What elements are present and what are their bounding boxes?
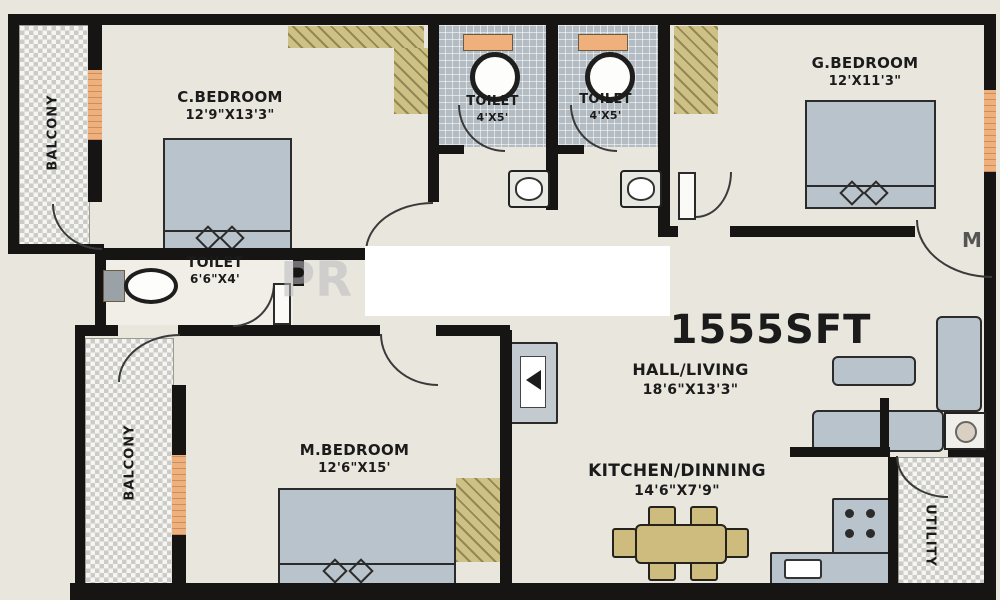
tv-unit-icon xyxy=(510,342,558,424)
watermark-box xyxy=(365,246,670,316)
room-name: HALL/LIVING xyxy=(598,360,783,381)
room-dims: 4'X5' xyxy=(558,109,653,123)
room-label-utility: UTILITY xyxy=(923,496,938,576)
room-name: KITCHEN/DINNING xyxy=(562,460,792,482)
coffee-table-icon xyxy=(832,356,916,386)
room-dims: 4'X5' xyxy=(445,111,540,125)
room-name: G.BEDROOM xyxy=(775,54,955,74)
wall-segment xyxy=(428,14,439,202)
door-arc-m-bedroom xyxy=(380,334,438,386)
wardrobe-icon xyxy=(394,48,428,114)
wall-segment xyxy=(75,328,85,590)
wall-segment xyxy=(436,325,510,336)
room-label-c-bedroom: C.BEDROOM 12'9"X13'3" xyxy=(135,88,325,124)
washing-machine-icon xyxy=(944,412,986,450)
door-arc-g-bedroom xyxy=(696,172,732,218)
wall-segment xyxy=(790,447,890,457)
room-label-m-bedroom: M.BEDROOM 12'6"X15' xyxy=(262,441,447,477)
room-label-toilet-a: TOILET 4'X5' xyxy=(445,94,540,125)
wall-segment xyxy=(172,535,186,583)
wall-segment xyxy=(88,25,102,70)
washbasin-icon xyxy=(620,170,662,208)
sofa-icon xyxy=(936,316,982,412)
toilet-tank-icon xyxy=(463,34,513,51)
bed-icon xyxy=(278,488,456,587)
floor-plan: PR M C.BEDROOM 12'9"X13'3" TOILET 4'X5' … xyxy=(0,0,1000,600)
room-dims: 12'6"X15' xyxy=(262,461,447,478)
wardrobe-icon xyxy=(674,26,718,114)
room-label-kitchen: KITCHEN/DINNING 14'6"X7'9" xyxy=(562,460,792,500)
room-dims: 12'9"X13'3" xyxy=(135,108,325,125)
wall-segment xyxy=(88,140,102,202)
sofa-icon xyxy=(812,410,944,452)
wall-segment xyxy=(888,457,898,583)
door-leaf-g-bedroom xyxy=(678,172,696,220)
wall-segment xyxy=(178,325,380,336)
wall-segment xyxy=(8,14,19,254)
chair-icon xyxy=(612,528,637,558)
room-label-g-bedroom: G.BEDROOM 12'X11'3" xyxy=(775,54,955,90)
wall-segment xyxy=(75,325,118,336)
wardrobe-icon xyxy=(456,478,500,562)
toilet-tank-icon xyxy=(103,270,125,302)
room-name: TOILET xyxy=(155,254,275,272)
door-arc-c-bedroom xyxy=(365,202,433,252)
dining-table-icon xyxy=(635,524,727,564)
toilet-tank-icon xyxy=(578,34,628,51)
wall-segment xyxy=(880,398,889,452)
sink-icon xyxy=(784,559,822,579)
bed-icon xyxy=(805,100,936,209)
room-dims: 6'6"X4' xyxy=(155,272,275,288)
wall-segment xyxy=(730,226,915,237)
room-dims: 18'6"X13'3" xyxy=(598,381,783,399)
wall-segment xyxy=(558,145,584,154)
bed-icon xyxy=(163,138,292,254)
room-dims: 14'6"X7'9" xyxy=(562,482,792,500)
room-label-hall: HALL/LIVING 18'6"X13'3" xyxy=(598,360,783,399)
wall-segment xyxy=(668,226,678,237)
watermark-text-left: PR xyxy=(280,252,352,308)
total-area-label: 1555SFT xyxy=(648,310,893,350)
washbasin-icon xyxy=(508,170,550,208)
room-dims: 12'X11'3" xyxy=(775,74,955,91)
window-icon xyxy=(172,455,186,535)
chair-icon xyxy=(724,528,749,558)
room-name: TOILET xyxy=(445,94,540,111)
room-name: C.BEDROOM xyxy=(135,88,325,108)
kitchen-counter xyxy=(770,552,894,585)
wall-segment xyxy=(500,330,512,583)
window-icon xyxy=(88,70,102,140)
wardrobe-icon xyxy=(288,26,424,48)
room-label-balcony-top: BALCONY xyxy=(46,93,61,173)
room-label-toilet-c: TOILET 6'6"X4' xyxy=(155,254,275,288)
wall-segment xyxy=(8,14,994,25)
room-name: M.BEDROOM xyxy=(262,441,447,461)
wall-segment xyxy=(438,145,464,154)
wall-segment xyxy=(70,583,996,600)
stove-icon xyxy=(832,498,892,554)
room-label-balcony-bottom: BALCONY xyxy=(123,423,138,503)
room-label-toilet-b: TOILET 4'X5' xyxy=(558,92,653,123)
wall-segment xyxy=(172,385,186,455)
window-icon xyxy=(984,90,996,172)
watermark-text-right: M xyxy=(962,228,982,252)
room-name: TOILET xyxy=(558,92,653,109)
